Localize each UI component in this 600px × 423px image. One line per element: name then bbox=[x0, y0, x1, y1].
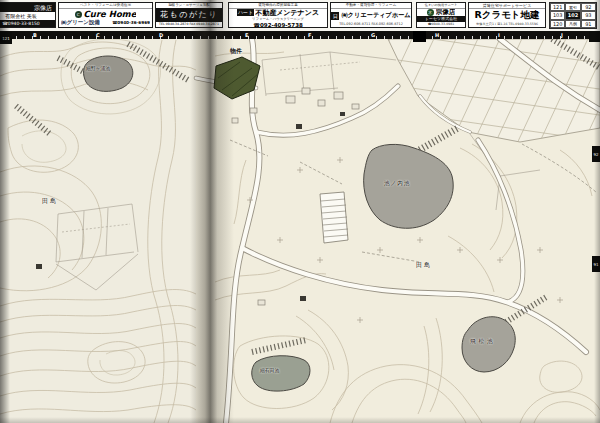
ad-kuramoto-address-phone: 宗像市土穴1丁目1-16 TEL.0940-33-5596 bbox=[469, 22, 545, 27]
left-page-paper bbox=[0, 39, 196, 423]
ad-tosetsu-store: 宗像店 bbox=[436, 9, 456, 16]
grid-letter: G bbox=[371, 31, 375, 39]
ruler-end-marker bbox=[589, 31, 600, 42]
page-grid-index-cell: 索引 bbox=[565, 3, 580, 11]
grid-letter: D bbox=[159, 31, 163, 39]
page-grid-legend-cell: 凡例 bbox=[565, 20, 580, 28]
ad-banner-strip: 宗像店 有限会社 美装 ☎0940-33-8150 ベスト・リフォームは快適住宅… bbox=[0, 0, 600, 31]
ad-creative-phone: TEL.092-606-8711 FAX.092-606-8712 bbox=[331, 22, 411, 27]
page-grid-cell: 121 bbox=[550, 3, 565, 11]
ad-tosetsu: 住まいの快適サポート 木 宗像店 トーセツ株式会社 ☎0940-33-0981 bbox=[416, 2, 466, 28]
pond-hosoishida bbox=[252, 356, 310, 391]
ad-tosetsu-phone: ☎0940-33-0981 bbox=[417, 22, 465, 27]
grid-letter: F bbox=[308, 31, 311, 39]
grid-letter: B bbox=[33, 31, 37, 39]
ad-cure-home-brand: Cure Home bbox=[84, 9, 137, 19]
creative-home-logo-icon: 日 bbox=[331, 12, 339, 20]
page-grid-cell: 92 bbox=[581, 3, 596, 11]
map-linework bbox=[0, 0, 600, 423]
page-grid-cell: 93 bbox=[581, 11, 596, 19]
current-page-cell: 102 bbox=[565, 11, 580, 19]
page-grid-cell: 91 bbox=[581, 20, 596, 28]
page-grid-cell: 103 bbox=[550, 11, 565, 19]
grid-letter: H bbox=[435, 31, 439, 39]
ad-misou-company: 有限会社 美装 bbox=[0, 12, 55, 20]
grid-letter: I bbox=[498, 31, 500, 39]
ad-flower-shop: 胡蝶ラン・コサージュ宅配 花ものがたり TEL 0940-34-2870 FAX… bbox=[155, 2, 223, 28]
ad-cure-home: ベスト・リフォームは快適住宅 C Cure Home ㈱グリーン設備 ☎0940… bbox=[58, 2, 153, 28]
grid-letter: C bbox=[96, 31, 100, 39]
ad-flower-brand: 花ものがたり bbox=[156, 8, 222, 22]
ad-misou: 宗像店 有限会社 美装 ☎0940-33-8150 bbox=[0, 2, 56, 28]
cure-home-logo-icon: C bbox=[75, 11, 82, 18]
edge-tab-left: 121 bbox=[0, 32, 12, 44]
pond-hosonogaura bbox=[84, 56, 133, 91]
edge-tab-right-top: 92 bbox=[592, 146, 600, 162]
ad-cure-home-phone: ☎0940-36-6969 bbox=[112, 20, 150, 25]
ad-kuramoto-brand: Rクラモト地建 bbox=[469, 9, 545, 22]
ruler-section-marker bbox=[413, 31, 426, 42]
ad-heart-phone: ☎092-409-5738 bbox=[229, 22, 327, 27]
tosetsu-tree-logo-icon: 木 bbox=[427, 9, 434, 16]
ad-misou-phone: ☎0940-33-8150 bbox=[0, 20, 55, 27]
ad-heart-brand-prefix: ハート bbox=[237, 9, 254, 16]
edge-tab-right-bottom: 91 bbox=[592, 256, 600, 272]
grid-letter: J bbox=[561, 31, 563, 39]
grid-letter: E bbox=[245, 31, 248, 39]
ruler-ticks bbox=[0, 36, 600, 39]
page-grid-cell: 120 bbox=[550, 20, 565, 28]
map-book-spread: 細野ヶ浦池 田島 物件 池ノ内池 田島 飛松池 細石田池 B C D E F G… bbox=[0, 0, 600, 423]
ad-creative-home: 不動産・賃貸管理・リフォーム 日 ㈲クリエーティブホーム TEL.092-606… bbox=[330, 2, 412, 28]
ad-heart-maintenance: 賃貸物件の原状回復工事 ハート 不動産メンテナンス リフォーム・ハウスクリーニン… bbox=[228, 2, 328, 28]
greenhouse-rows bbox=[320, 192, 348, 243]
ad-kuramoto: 賃貸住宅サポートサービス Rクラモト地建 宗像市土穴1丁目1-16 TEL.09… bbox=[468, 2, 546, 28]
page-index-grid: 121 索引 92 103 102 93 120 凡例 91 bbox=[549, 2, 597, 29]
ad-misou-store: 宗像店 bbox=[0, 3, 55, 12]
ad-creative-brand: ㈲クリエーティブホーム bbox=[341, 11, 410, 20]
ad-flower-phone: TEL 0940-34-2870 FAX 0940-34-2871 bbox=[156, 22, 222, 27]
ad-cure-home-company: ㈱グリーン設備 bbox=[61, 19, 100, 26]
map-grid-ruler: B C D E F G H I J bbox=[0, 31, 600, 39]
ad-heart-brand: 不動産メンテナンス bbox=[255, 9, 319, 18]
